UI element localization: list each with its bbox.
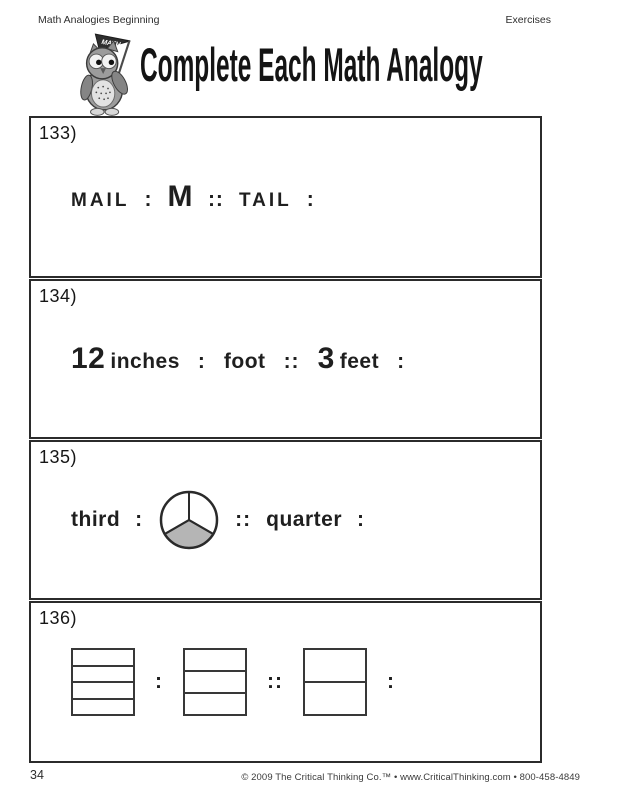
term-b: foot [224, 350, 266, 374]
rect-section [73, 681, 133, 698]
rectangle-divided-halves [303, 648, 367, 716]
rect-section [73, 698, 133, 715]
rectangle-divided-thirds [183, 648, 247, 716]
colon: : [198, 350, 206, 374]
worksheet-page: Math Analogies Beginning Exercises MATH [0, 0, 618, 800]
double-colon: :: [235, 508, 251, 532]
rect-section [305, 681, 365, 714]
term-a-unit: inches [110, 350, 180, 374]
rect-section [73, 650, 133, 665]
analogy-text: MAIL : M :: TAIL : [71, 180, 315, 214]
analogy-row: : :: : [31, 603, 540, 761]
section-label: Exercises [505, 14, 551, 26]
owl-mascot-icon: MATH [74, 28, 142, 118]
colon: : [307, 188, 315, 212]
colon: : [135, 508, 143, 532]
double-colon: :: [208, 188, 224, 212]
pie-thirds-icon [158, 489, 220, 551]
colon: : [397, 350, 405, 374]
page-title: Complete Each Math Analogy [140, 40, 483, 89]
double-colon: :: [267, 670, 283, 694]
colon: : [155, 670, 163, 694]
owl-pupil-left [96, 60, 101, 65]
term-a: MAIL [71, 190, 129, 212]
exercise-135: 135) third : :: quarter : [29, 440, 542, 600]
page-number: 34 [30, 768, 44, 782]
analogy-row: MAIL : M :: TAIL : [31, 118, 540, 276]
colon: : [387, 670, 395, 694]
book-title: Math Analogies Beginning [38, 14, 159, 26]
exercise-136: 136) : :: : [29, 601, 542, 763]
owl-belly [91, 80, 114, 107]
rect-section [185, 692, 245, 714]
term-c: TAIL [239, 190, 292, 212]
rect-section [73, 665, 133, 682]
term-c: quarter [266, 508, 342, 532]
term-c-unit: feet [340, 350, 379, 374]
owl-pupil-right [109, 60, 114, 65]
rectangle-divided-fourths [71, 648, 135, 716]
flag-pole [119, 41, 130, 74]
owl-foot-left [91, 108, 105, 115]
fraction-circle-thirds [158, 489, 220, 551]
term-a-number: 12 [71, 342, 105, 376]
colon: : [144, 188, 152, 212]
term-a: third [71, 508, 120, 532]
copyright-line: © 2009 The Critical Thinking Co.™ • www.… [241, 772, 580, 783]
analogy-row: 12 inches : foot :: 3 feet : [31, 281, 540, 437]
exercise-134: 134) 12 inches : foot :: 3 feet : [29, 279, 542, 439]
analogy-row: third : :: quarter : [31, 442, 540, 598]
rect-section [185, 670, 245, 692]
double-colon: :: [284, 350, 300, 374]
colon: : [357, 508, 365, 532]
term-b: M [167, 180, 193, 214]
exercise-133: 133) MAIL : M :: TAIL : [29, 116, 542, 278]
rect-section [185, 650, 245, 670]
analogy-text: 12 inches : foot :: 3 feet : [71, 342, 405, 376]
rect-section [305, 650, 365, 681]
term-c-number: 3 [318, 342, 335, 376]
owl-foot-right [105, 108, 119, 115]
exercise-list: 133) MAIL : M :: TAIL : 134) 12 inches : [29, 116, 542, 763]
